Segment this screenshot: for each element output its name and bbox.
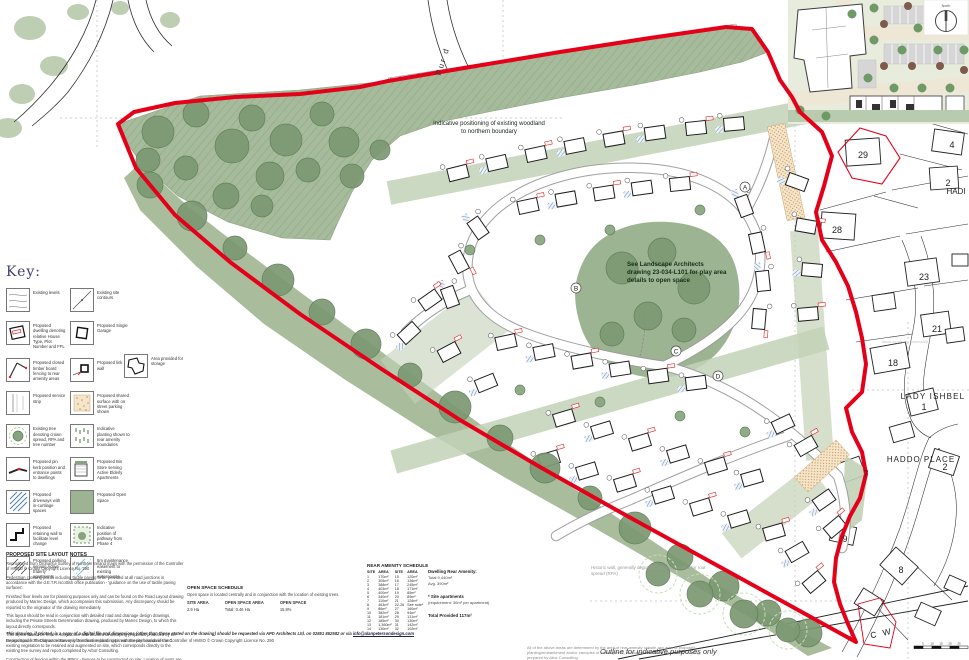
key-swatch-9	[6, 424, 30, 448]
plot-number-circle	[625, 178, 630, 183]
ffl-label-chip	[816, 563, 824, 570]
existing-tree-crown	[256, 162, 284, 190]
existing-tree-crown	[136, 148, 160, 172]
plot-number-circle	[548, 189, 554, 195]
driveway-hatch	[715, 126, 723, 133]
driveway-hatch	[754, 262, 761, 270]
key-swatch-15	[6, 523, 30, 547]
total-provided: Total Provided 117m²	[428, 613, 520, 618]
ffl-label-chip	[709, 492, 717, 497]
existing-tree-crown	[270, 124, 302, 156]
key-item-7: Proposed service strip	[6, 391, 66, 415]
scale-tick: 25	[957, 642, 961, 646]
open-space-description: Open space is located centrally and in c…	[187, 592, 372, 597]
plot-number-circle	[479, 154, 485, 160]
driveway-hatch	[792, 269, 800, 276]
scale-tick: 10	[930, 642, 934, 646]
plot-number-circle	[526, 342, 532, 348]
existing-tree-crown	[535, 235, 545, 245]
key-item-13: Proposed driveways with in-curtilage spa…	[6, 490, 66, 514]
rear-amenity-summary: Dwelling Rear Amenity: Total 9,440m² Avg…	[428, 569, 520, 618]
plot-number-circle	[791, 303, 796, 308]
plot-number-circle	[583, 422, 589, 428]
proposed-dwelling	[730, 464, 763, 491]
open-space-col-2: OPEN SPACE15.8%	[280, 600, 307, 612]
proposed-dwelling	[545, 186, 577, 210]
proposed-dwelling	[751, 303, 772, 338]
summary-total: Total 9,440m²	[428, 575, 520, 580]
proposed-dwelling	[621, 425, 659, 453]
plot-number-circle	[596, 129, 602, 135]
key-item-0: Existing levels	[6, 288, 66, 312]
key-swatch-4	[6, 358, 30, 382]
existing-tree-crown	[340, 164, 364, 188]
key-item-11: Proposed pin kerb position and entrance …	[6, 457, 66, 481]
key-swatch-3	[70, 321, 94, 345]
woodland-annotation: Indicative positioning of existing woodl…	[430, 121, 548, 136]
plot-number-circle	[557, 136, 563, 142]
os-house-outline	[889, 421, 915, 442]
street-lady-ishbel: LADY ISHBEL	[901, 392, 966, 401]
proposed-dwelling	[565, 457, 598, 484]
key-swatch-14	[70, 490, 94, 514]
existing-tree-crown	[675, 411, 685, 421]
plot-number-circle	[733, 470, 739, 476]
key-panel: Key: Existing levelsExisting site contou…	[6, 264, 178, 580]
existing-tree-crown	[687, 581, 713, 607]
driveway-hatch	[636, 136, 644, 143]
ffl-label-chip	[668, 364, 675, 369]
rear-amenity-table: SITEAREASITEAREA 1170m²15120m²2305m²1613…	[367, 570, 426, 631]
key-item-label: Proposed Open Space	[97, 490, 130, 503]
site-layout-notes: PROPOSED SITE LAYOUT NOTES Reproduced fr…	[6, 552, 184, 660]
os-house-number: 4	[949, 140, 954, 150]
ownership-note: lands in private ownership	[882, 339, 929, 344]
existing-tree-crown	[215, 129, 249, 163]
existing-tree-crown	[183, 101, 209, 127]
key-swatch-10	[70, 424, 94, 448]
plot-number-circle	[679, 117, 684, 122]
existing-tree-crown	[730, 600, 758, 628]
proposed-dwelling	[586, 178, 622, 201]
scale-tick: 20	[948, 642, 952, 646]
ffl-label-chip	[545, 140, 553, 145]
key-swatch-11	[6, 457, 30, 481]
key-grid: Existing levelsExisting site contoursPro…	[6, 288, 178, 580]
ffl-label-chip	[537, 192, 545, 197]
key-item-12: Proposed Bin Store serving Active Elderl…	[70, 457, 130, 481]
ffl-label-chip	[466, 159, 474, 164]
existing-tree-crown	[370, 140, 390, 160]
rear-amenity-schedule: REAR AMENITY SCHEDULE SITEAREASITEAREA 1…	[367, 563, 429, 631]
os-house-outline	[932, 129, 965, 155]
road-marker-letter: C	[674, 349, 679, 356]
os-house-number: 28	[832, 225, 842, 235]
footer-copyright: Reproduced from Ordnance Survey of North…	[6, 638, 506, 643]
key-item-label: Proposed Bin Store serving Active Elderl…	[97, 457, 130, 480]
key-item-label: Proposed pin kerb position and entrance …	[33, 457, 66, 480]
plot-number-circle	[389, 332, 396, 339]
key-item-3: Proposed Single Garage	[70, 321, 130, 349]
existing-tree-crown	[740, 427, 750, 437]
key-swatch-13	[6, 490, 30, 514]
os-house-number: 23	[919, 272, 929, 282]
key-swatch-16	[70, 523, 94, 547]
driveway-hatch	[781, 559, 791, 568]
key-swatch-8	[70, 391, 94, 415]
notes-paragraph-5: Construction of fencing within the RPA's…	[6, 657, 184, 660]
existing-tree-crown	[595, 397, 605, 407]
key-item-label: Proposed closed timber board fencing to …	[33, 358, 66, 381]
os-house-number: 8	[898, 565, 903, 575]
plot-number-circle	[451, 278, 457, 284]
key-item-8: Proposed shared surface with on street p…	[70, 391, 130, 415]
notes-paragraph-1: Pedestrian crossing points including tac…	[6, 575, 184, 591]
road-marker-letter: A	[743, 185, 748, 192]
key-item-label: Proposed retaining wall to facilitate le…	[33, 523, 66, 546]
driveway-hatch	[623, 191, 631, 198]
existing-tree-crown	[329, 127, 359, 157]
existing-tree-crown	[239, 105, 265, 131]
email-link[interactable]: info@alanpetersondesign.com	[353, 631, 414, 636]
landscape-architects-annotation: See Landscape Architects drawing 23-034-…	[627, 261, 727, 285]
key-item-2: Proposed dwelling denoting relative Hous…	[6, 321, 66, 349]
ffl-label-chip	[557, 444, 565, 449]
os-house-number: 2	[942, 462, 947, 472]
os-house-outline	[944, 575, 966, 595]
plot-number-circle	[638, 123, 643, 128]
scale-tick: 5	[922, 642, 924, 646]
scale-bar: 510152025	[914, 642, 968, 649]
driveway-hatch	[677, 385, 685, 392]
street-cw: C W	[869, 626, 893, 640]
key-item-4: Proposed closed timber board fencing to …	[6, 358, 66, 382]
open-space-title: OPEN SPACE SCHEDULE	[187, 585, 372, 590]
key-item-label: Proposed dwelling denoting relative Hous…	[33, 321, 66, 349]
road-marker-letter: D	[716, 374, 721, 381]
plot-number-circle	[777, 547, 784, 554]
os-house-outline	[872, 293, 896, 312]
driveway-hatch	[469, 388, 478, 397]
ra-row: 14130m²32102m²	[367, 627, 426, 631]
key-item-5: Proposed link wall	[70, 358, 130, 382]
ffl-label-chip	[818, 302, 825, 306]
plot-number-circle	[606, 475, 612, 481]
os-house-number: 2	[945, 178, 950, 188]
notes-title: PROPOSED SITE LAYOUT NOTES	[6, 552, 184, 558]
summary-avg: Avg. 390m²	[428, 581, 520, 586]
plot-number-circle	[440, 164, 446, 170]
plot-number-circle	[659, 446, 665, 452]
existing-tree-crown	[600, 322, 624, 346]
plot-number-circle	[586, 183, 591, 188]
proposed-dwelling	[682, 490, 720, 518]
proposed-dwelling	[794, 561, 832, 597]
existing-tree-crown	[351, 329, 381, 359]
key-title: Key:	[6, 264, 178, 280]
existing-tree-crown	[515, 385, 525, 395]
street-hadi: HADI	[946, 187, 965, 196]
key-item-label: Indicative position of pathway from Phas…	[97, 523, 130, 546]
existing-tree-crown	[465, 245, 475, 255]
plot-number-circle	[717, 113, 722, 118]
existing-tree-crown	[213, 183, 239, 209]
proposed-dwelling	[464, 368, 498, 397]
proposed-dwelling	[656, 440, 689, 467]
key-item-label: Existing levels	[33, 288, 60, 295]
existing-tree-crown	[695, 205, 705, 215]
existing-tree-crown	[605, 225, 615, 235]
plot-number-circle	[797, 257, 802, 262]
plot-number-circle	[767, 304, 772, 309]
notes-paragraph-0: Reproduced from Ordnance Survey of North…	[6, 561, 184, 572]
existing-tree-crown	[177, 201, 207, 231]
os-house-outline	[915, 602, 942, 626]
driveway-hatch	[526, 355, 535, 363]
site-layout-drawing: North 510152025 LADY ISHBEL HADDO PLACE …	[0, 0, 969, 660]
notes-paragraph-3: This layout should be read in conjunctio…	[6, 613, 184, 629]
key-item-9: Existing tree denoting crown spread, RPA…	[6, 424, 66, 448]
os-house-number: 21	[932, 324, 942, 334]
apartments-note: (requirement: 30m² per apartment)	[428, 600, 520, 605]
key-item-14: Proposed Open Space	[70, 490, 130, 514]
key-item-label: Indicative planting shown to rear amenit…	[97, 424, 130, 447]
key-item-label: Proposed service strip	[33, 391, 66, 404]
proposed-dwelling	[580, 416, 613, 443]
plot-number-circle	[761, 225, 767, 231]
apartments-note-title: * Site apartments	[428, 594, 520, 599]
key-item-10: Indicative planting shown to rear amenit…	[70, 424, 130, 448]
plot-number-circle	[568, 463, 574, 469]
key-item-6: Area provided for storage	[124, 354, 184, 378]
ffl-label-chip	[648, 427, 656, 432]
plot-number-circle	[697, 458, 703, 464]
existing-tree-crown	[776, 618, 800, 642]
driveway-hatch	[601, 372, 609, 380]
existing-tree-crown	[142, 116, 174, 148]
ffl-label-chip	[764, 331, 768, 338]
key-item-label: Existing site contours	[97, 288, 130, 301]
plot-number-circle	[458, 242, 464, 248]
notes-paragraph-2: Finished floor levels are for planning p…	[6, 594, 184, 610]
existing-tree-crown	[634, 302, 662, 330]
plot-number-circle	[518, 145, 524, 151]
ffl-label-chip	[690, 172, 697, 176]
driveway-hatch	[645, 499, 654, 507]
plot-number-circle	[475, 208, 482, 215]
ffl-label-chip	[623, 126, 631, 131]
open-space-schedule: OPEN SPACE SCHEDULE Open space is locate…	[187, 585, 372, 612]
driveway-hatch	[547, 202, 556, 210]
plot-number-circle	[663, 173, 668, 178]
existing-tree-crown	[755, 600, 781, 626]
key-swatch-5	[70, 358, 94, 382]
os-house-outline	[952, 254, 968, 266]
plot-number-circle	[786, 441, 793, 448]
plot-number-circle	[410, 297, 417, 304]
key-item-label: Proposed shared surface with on street p…	[97, 391, 130, 414]
existing-tree-crown	[174, 156, 198, 180]
os-house-outline	[945, 327, 965, 343]
existing-tree-crown	[223, 236, 247, 260]
proposed-dwelling	[622, 175, 653, 198]
ffl-label-chip	[633, 468, 641, 473]
summary-title: Dwelling Rear Amenity:	[428, 569, 520, 574]
key-swatch-6	[124, 354, 148, 378]
ffl-label-chip	[706, 116, 713, 120]
road-marker-letter: B	[574, 286, 578, 293]
existing-tree-crown	[251, 195, 273, 217]
key-swatch-7	[6, 391, 30, 415]
ffl-label-chip	[766, 252, 771, 260]
existing-tree-crown	[310, 102, 334, 126]
plot-number-circle	[621, 434, 627, 440]
existing-tree-crown	[296, 158, 320, 182]
key-swatch-2	[6, 321, 30, 345]
proposed-dwelling	[606, 466, 644, 494]
plot-number-circle	[467, 376, 473, 382]
ffl-label-chip	[613, 180, 620, 185]
key-item-label: Proposed driveways with in-curtilage spa…	[33, 490, 66, 513]
os-house-number: 29	[858, 150, 868, 160]
key-swatch-12	[70, 457, 94, 481]
open-space-col-1: OPEN SPACE AREATotal: 0.46 Ha	[225, 600, 264, 612]
historic-wall-annotation: Historic wall, generally degraded, allow…	[591, 565, 707, 577]
key-item-16: Indicative position of pathway from Phas…	[70, 523, 130, 547]
plot-number-circle	[720, 511, 726, 517]
proposed-dwelling	[775, 537, 810, 568]
os-house-number: 9	[842, 534, 847, 544]
ffl-label-chip	[591, 348, 599, 353]
open-space-col-0: SITE AREA2.9 Ha	[187, 600, 209, 612]
os-house-number: 1	[921, 402, 926, 412]
footer-disclaimer: This drawing, if printed, is a copy of a…	[6, 631, 506, 636]
rear-amenity-title: REAR AMENITY SCHEDULE	[367, 563, 429, 568]
key-swatch-1	[70, 288, 94, 312]
driveway-hatch	[734, 482, 743, 490]
plot-number-circle	[815, 525, 822, 532]
plot-number-circle	[682, 499, 688, 505]
key-item-label: Area provided for storage	[151, 354, 184, 367]
plot-number-circle	[768, 264, 773, 269]
driveway-hatch	[584, 434, 593, 442]
key-item-15: Proposed retaining wall to facilitate le…	[6, 523, 66, 547]
driveway-hatch	[660, 458, 669, 466]
north-arrow: North	[924, 0, 968, 35]
north-label: North	[942, 4, 951, 8]
key-item-label: Proposed Single Garage	[97, 321, 130, 334]
existing-tree-crown	[672, 318, 696, 342]
os-house-number: 18	[888, 358, 898, 368]
key-item-label: Existing tree denoting crown spread, RPA…	[33, 424, 66, 447]
plot-number-circle	[679, 373, 684, 378]
os-house-number: 7	[863, 469, 868, 479]
outline-indicative-note: Outline for indicative purposes only	[600, 647, 840, 656]
drawing-footer: This drawing, if printed, is a copy of a…	[6, 631, 506, 643]
key-swatch-0	[6, 288, 30, 312]
plot-number-circle	[530, 451, 536, 457]
key-item-1: Existing site contours	[70, 288, 130, 312]
scale-tick: 15	[939, 642, 943, 646]
